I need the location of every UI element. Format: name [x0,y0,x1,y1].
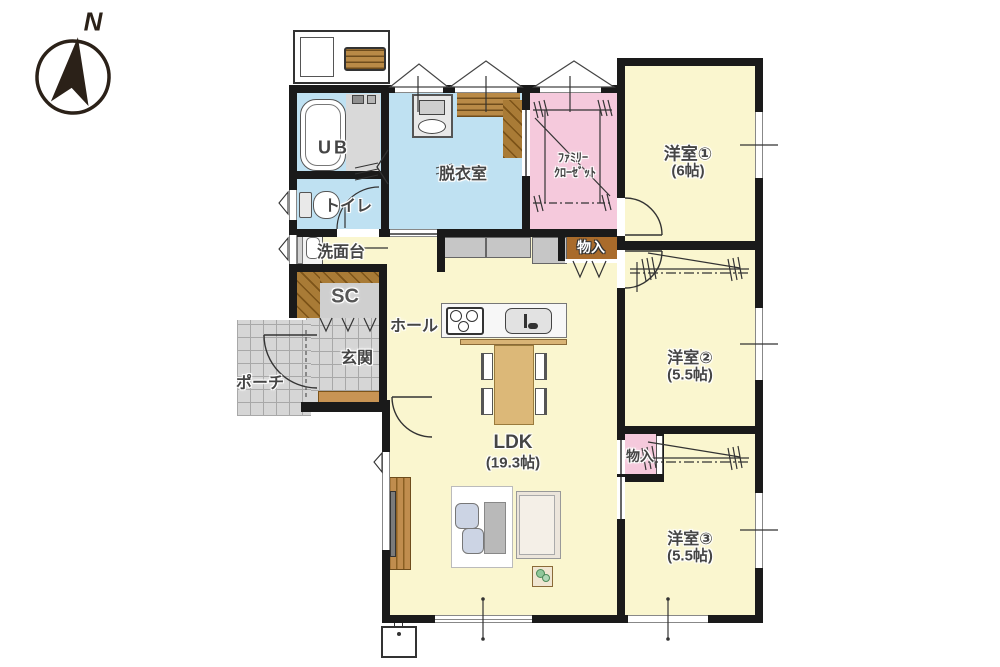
stove-burner1 [450,310,462,322]
faucet-icon [524,314,527,328]
faucet-head [528,323,538,329]
compass-label: N [84,7,103,38]
family-closet-label-2: ｸﾛｰｾﾞｯﾄ [554,164,596,181]
door-gap-storage-hall-bottom [565,259,617,263]
outdoor-faucet-dot [397,632,401,636]
bedroom2-size: (5.5帖) [667,364,713,385]
wall-bed2-bed3 [617,426,763,434]
floor-cushion-1 [455,503,479,529]
bath-counter-icon [352,95,364,104]
wall-ub-dressing [381,85,389,237]
dining-chair-4 [535,388,547,415]
door-gap-toilet [337,229,379,237]
hall-label: ホール [390,312,438,336]
entrance-label: 玄関 [341,344,373,368]
washing-machine-drum [418,119,446,134]
wall-top-right [617,58,763,66]
sofa-seat [519,495,555,555]
door-gap-bedroom1 [617,198,625,236]
sink-icon [505,308,552,334]
porch-label: ポーチ [236,369,284,393]
unit-bath-label: UB [318,138,350,159]
window-bedroom1-east [755,112,763,178]
porch-floor [237,320,311,416]
window-linen-top [455,85,517,93]
compass-icon [33,33,114,117]
plant-leaf [542,574,550,582]
washing-machine-screen [419,100,445,115]
storage-bedroom3-label: 物入 [626,446,654,466]
wall-wash-sc [289,264,387,272]
dining-chair-3 [535,353,547,380]
window-ldk-south [435,615,532,623]
stove-burner2 [466,310,478,322]
living-table [484,502,506,554]
shoe-closet-shelf-left [295,270,320,318]
floor-plan: N UB 脱衣室 ﾌｧﾐﾘｰ ｸﾛｰｾﾞｯﾄ 洋室① (6帖) トイレ 洗面台 … [0,0,1000,667]
wall-ub-toilet [289,171,385,179]
wall-storage-hall-stub [558,237,565,261]
washstand-label: 洗面台 [317,238,365,262]
window-ldk-west [382,452,390,550]
dining-table [494,345,534,425]
wall-bed1-bed2 [617,241,763,250]
window-bedroom2-east [755,308,763,380]
ldk-size: (19.3帖) [486,452,540,473]
window-fc-top [540,85,601,93]
door-gap-storage3-west [617,440,625,474]
floor-cushion-2 [462,528,484,554]
bedroom1-size: (6帖) [671,160,704,181]
door-line-storage3 [656,436,663,474]
toilet-tank [299,192,312,218]
dining-chair-2 [481,388,493,415]
wall-sc-hall [379,264,387,410]
window-dressing-top [395,85,443,93]
door-gap-dressing [390,229,437,237]
dining-chair-1 [481,353,493,380]
storage-hall-label: 物入 [577,237,605,257]
bath-counter-icon2 [367,95,376,104]
outdoor-faucet-box [381,626,417,658]
shoe-closet-label: SC [331,286,359,309]
window-bedroom3-south [628,615,708,623]
door-gap-fc [522,110,530,176]
dressing-cabinet [503,100,524,158]
tv-icon [390,491,396,557]
window-bedroom3-east [755,493,763,568]
vanity-side [297,234,303,264]
window-toilet-west [289,190,297,220]
door-gap-bedroom3 [617,477,625,519]
toilet-label: トイレ [324,192,372,216]
shower-floor [346,94,380,174]
wall-entrance-bottom [301,402,385,412]
kitchen-cabinet-divider [485,237,487,258]
wall-kitchen-left [437,229,445,272]
ac-outdoor-unit-icon [344,47,386,71]
dressing-room-label: 脱衣室 [439,160,487,184]
window-washstand-west [289,235,297,264]
water-heater-square [300,37,334,77]
door-gap-bedroom2 [617,250,625,288]
stove-burner3 [458,321,469,332]
bedroom3-size: (5.5帖) [667,545,713,566]
